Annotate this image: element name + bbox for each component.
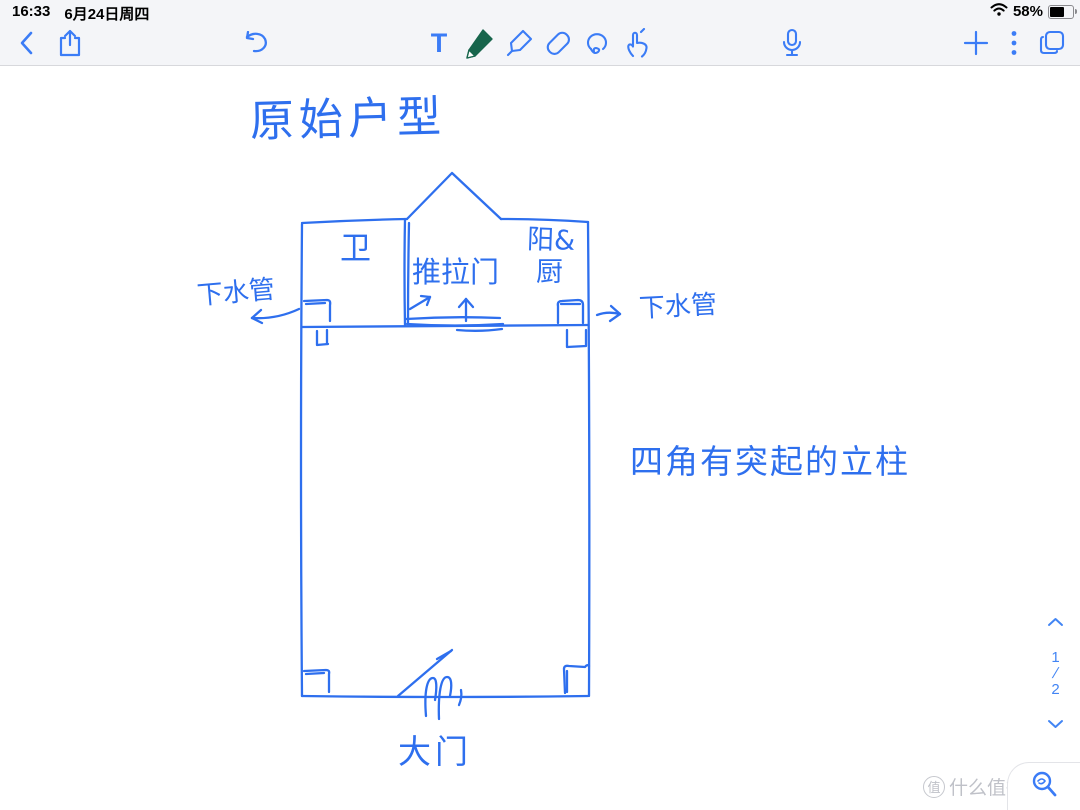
undo-button[interactable] [236, 24, 274, 62]
lasso-tool-button[interactable] [578, 24, 616, 62]
page-separator: / [1051, 666, 1060, 682]
share-button[interactable] [51, 24, 89, 62]
sketch-title: 原始户型 [249, 95, 446, 144]
eraser-icon [543, 28, 573, 58]
hand-tool-button[interactable] [617, 24, 655, 62]
chevron-down-icon [1047, 716, 1064, 733]
page-up-button[interactable] [1043, 610, 1068, 636]
text-tool-button[interactable]: T [420, 24, 458, 62]
magnifier-icon [1029, 769, 1059, 804]
undo-icon [241, 31, 269, 55]
pointing-hand-icon [621, 28, 651, 58]
battery-icon [1048, 5, 1074, 19]
chevron-up-icon [1047, 614, 1064, 631]
microphone-icon [779, 28, 805, 58]
label-bathroom: 卫 [340, 234, 371, 265]
note-canvas[interactable]: 原始户型 卫 推拉门 阳& 厨 下水管 下水管 四角有突起的立柱 大门 [0, 66, 1080, 810]
page-total: 2 [1051, 682, 1059, 698]
label-balcony-kitchen-line2: 厨 [536, 259, 563, 286]
page-down-button[interactable] [1043, 712, 1068, 738]
share-icon [56, 28, 84, 58]
label-drain-pipe-left: 下水管 [196, 277, 276, 310]
pen-icon [463, 27, 495, 59]
text-tool-icon: T [431, 30, 448, 57]
top-toolbar: 16:33 6月24日周四 58% [0, 0, 1080, 66]
record-audio-button[interactable] [773, 24, 811, 62]
chevron-left-icon [16, 30, 38, 56]
highlighter-icon [504, 28, 534, 58]
wifi-icon [990, 3, 1008, 20]
label-main-door: 大门 [398, 735, 472, 768]
label-drain-pipe-right: 下水管 [638, 292, 717, 322]
page-overview-button[interactable] [1033, 24, 1071, 62]
more-options-button[interactable] [995, 24, 1033, 62]
status-bar-left: 16:33 6月24日周四 [12, 3, 149, 24]
status-time: 16:33 [12, 3, 50, 24]
eraser-tool-button[interactable] [539, 24, 577, 62]
page-indicator: 1 / 2 [1051, 650, 1059, 698]
back-button[interactable] [8, 24, 46, 62]
label-balcony-kitchen-line1: 阳& [527, 226, 576, 255]
lasso-icon [582, 28, 612, 58]
label-columns-note: 四角有突起的立柱 [630, 445, 910, 478]
page-navigator: 1 / 2 [1043, 610, 1068, 738]
plus-icon [963, 30, 989, 56]
highlighter-tool-button[interactable] [500, 24, 538, 62]
watermark-badge: 值 [923, 776, 945, 798]
status-bar-right: 58% [990, 3, 1074, 20]
page-current: 1 [1051, 650, 1059, 666]
notes-app-screen: 16:33 6月24日周四 58% [0, 0, 1080, 810]
floorplan-sketch [0, 66, 1080, 810]
corner-search-panel[interactable] [1007, 762, 1080, 810]
pen-tool-button[interactable] [460, 24, 498, 62]
pages-icon [1038, 30, 1066, 56]
battery-percent: 58% [1013, 3, 1043, 20]
add-page-button[interactable] [957, 24, 995, 62]
status-date: 6月24日周四 [64, 3, 149, 24]
label-sliding-door: 推拉门 [412, 258, 499, 287]
ellipsis-vertical-icon [1010, 30, 1018, 56]
